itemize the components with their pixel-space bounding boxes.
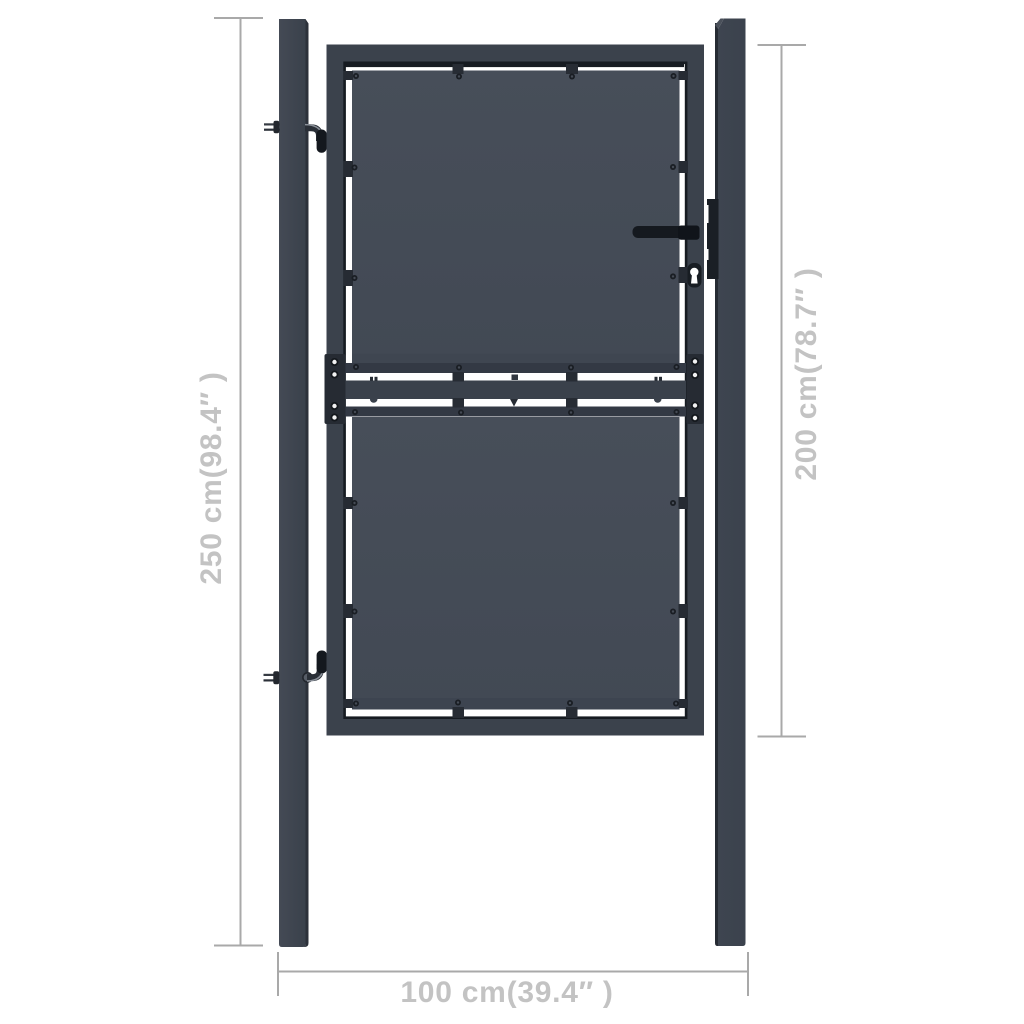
svg-text:100 cm(39.4″ ): 100 cm(39.4″ ) [400, 976, 613, 1009]
svg-text:200 cm(78.7″ ): 200 cm(78.7″ ) [790, 267, 823, 480]
svg-text:250 cm(98.4″ ): 250 cm(98.4″ ) [195, 371, 228, 584]
